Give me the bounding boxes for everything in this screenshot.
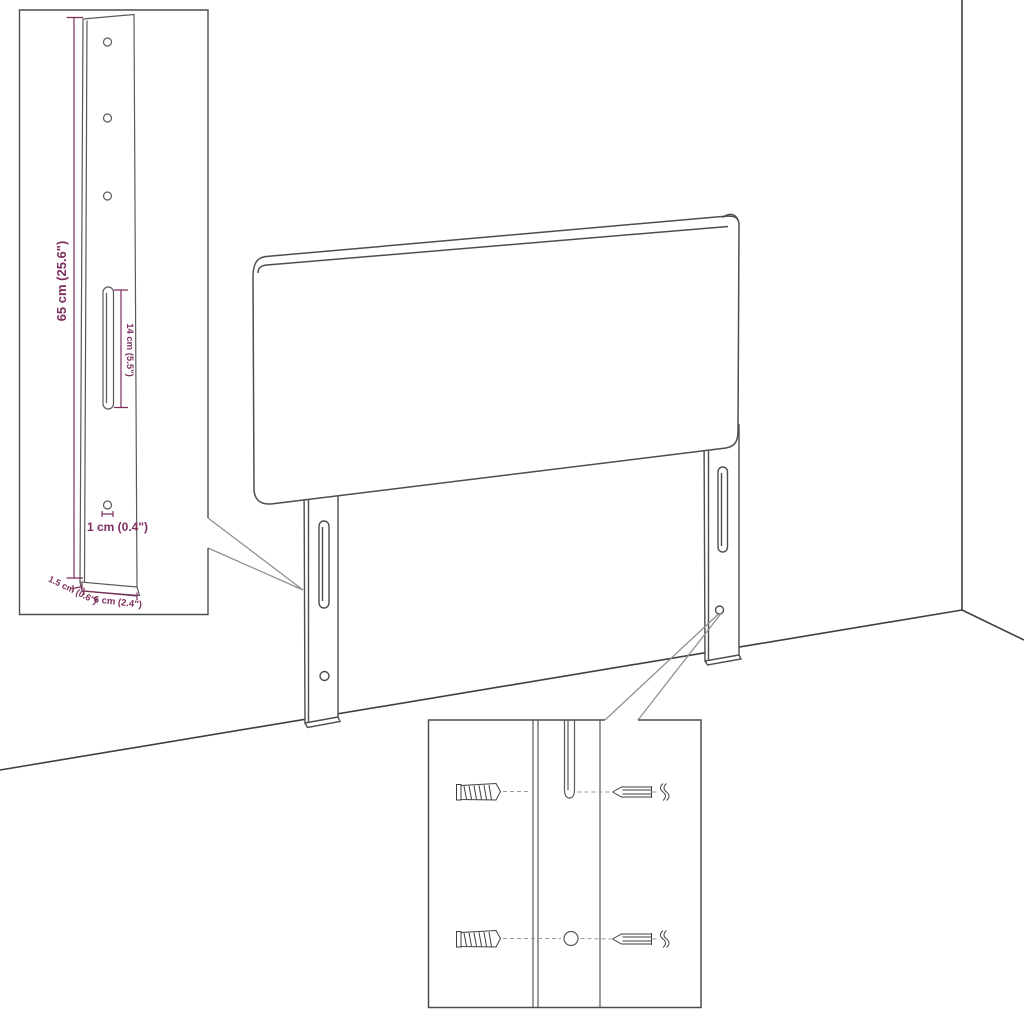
- slot-length-dimension-label: 14 cm (5.5"): [124, 323, 135, 377]
- headboard-assembly-diagram: 65 cm (25.6") 14 cm (5.5") 1 cm (0.4") 1…: [0, 0, 1024, 1024]
- mounting-hardware-inset: [429, 614, 722, 1008]
- headboard-left-leg: [304, 465, 340, 728]
- bracket-slot: [103, 287, 114, 409]
- mounting-hole: [564, 932, 578, 946]
- bracket-small-hole: [104, 501, 112, 509]
- headboard-panel: [253, 214, 739, 504]
- inset-callout-pointer: [208, 518, 303, 590]
- left-leg-slot: [319, 521, 329, 608]
- height-dimension-label: 65 cm (25.6"): [54, 241, 69, 322]
- right-leg-hole: [716, 606, 724, 614]
- floor-line-right: [962, 610, 1024, 640]
- bracket-hole-top: [104, 38, 112, 46]
- bracket-hole-middle: [104, 114, 112, 122]
- hole-diameter-dimension-label: 1 cm (0.4"): [87, 520, 148, 534]
- right-leg-slot: [718, 467, 728, 552]
- product-diagram-page: 65 cm (25.6") 14 cm (5.5") 1 cm (0.4") 1…: [0, 0, 1024, 1024]
- left-leg-hole: [320, 672, 329, 681]
- bracket-hole-lower: [104, 192, 112, 200]
